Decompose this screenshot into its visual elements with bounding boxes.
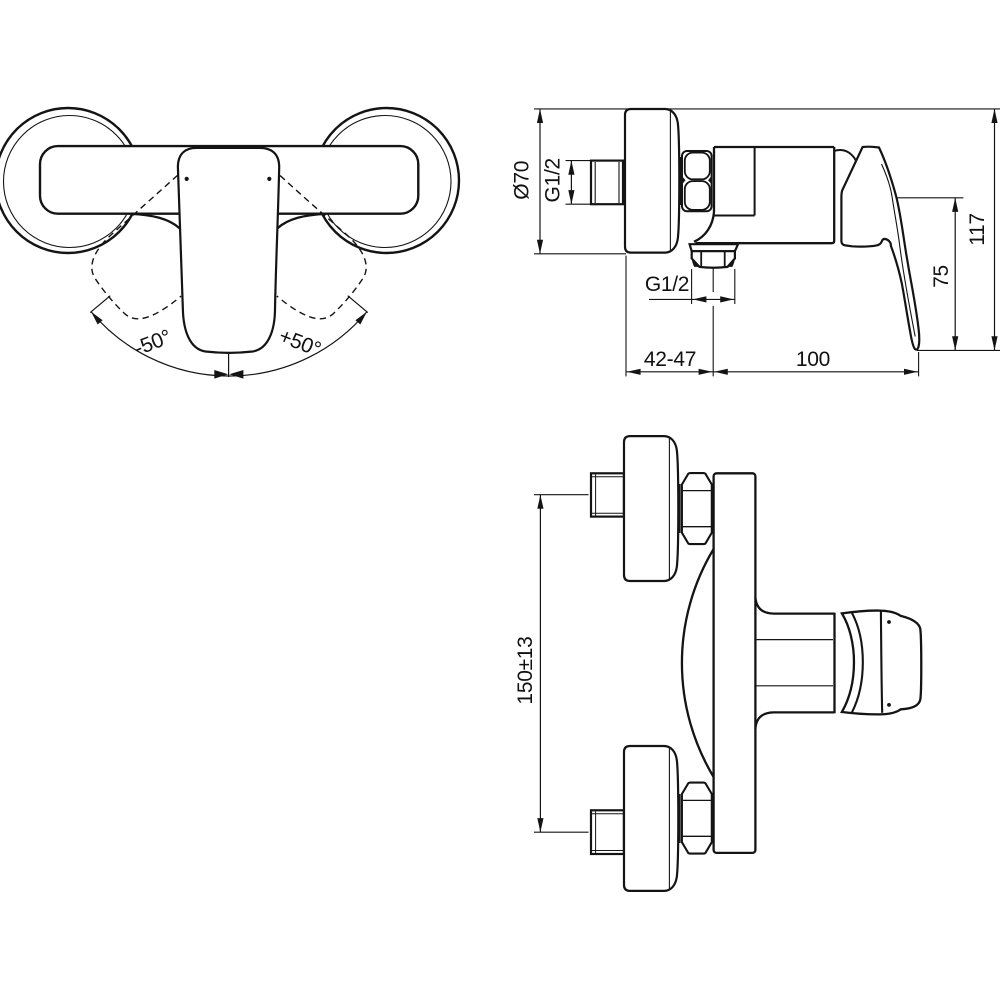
svg-text:G1/2: G1/2 — [542, 158, 565, 202]
svg-text:100: 100 — [796, 348, 830, 371]
svg-text:150±13: 150±13 — [514, 636, 537, 704]
svg-text:Ø70: Ø70 — [511, 161, 534, 200]
svg-text:117: 117 — [966, 213, 989, 246]
svg-text:75: 75 — [930, 265, 953, 288]
svg-text:42-47: 42-47 — [644, 348, 696, 371]
svg-text:G1/2: G1/2 — [645, 273, 689, 296]
